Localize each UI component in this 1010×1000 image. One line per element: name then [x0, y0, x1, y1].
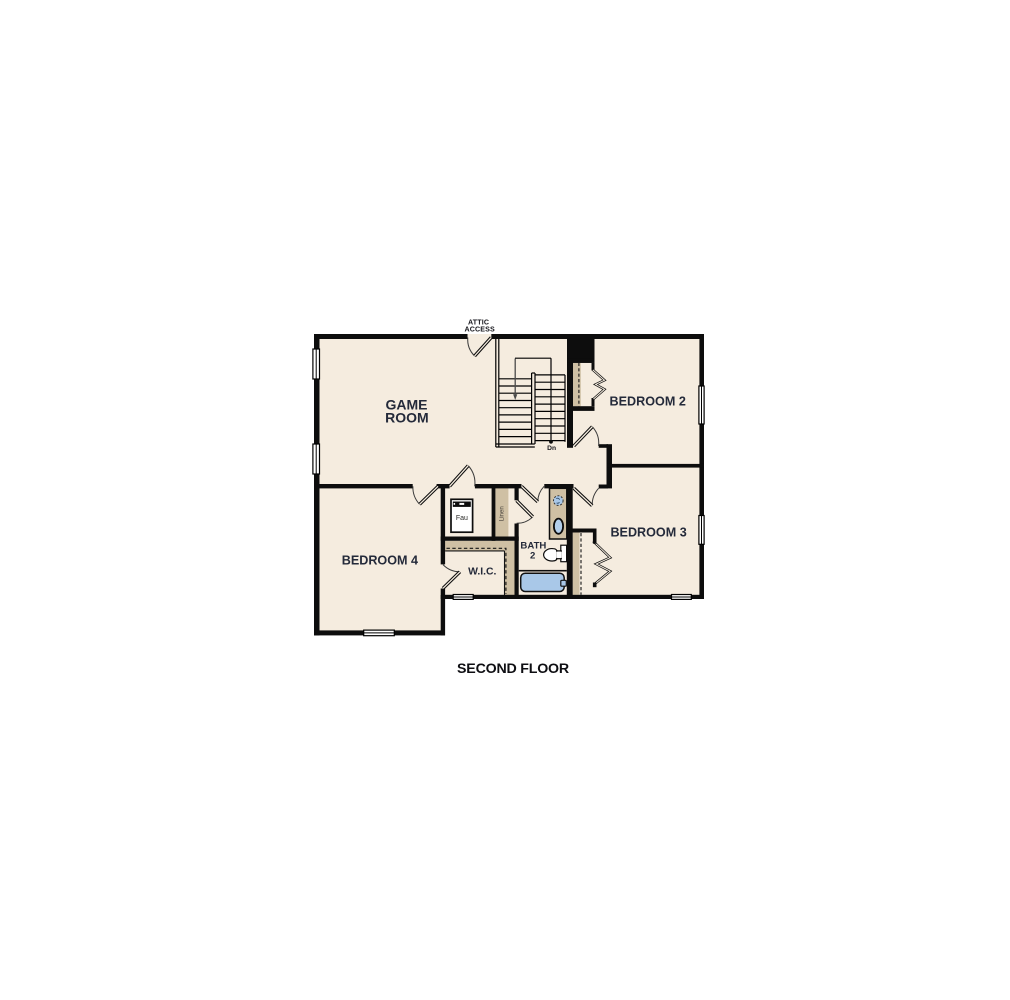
svg-text:BATH: BATH [520, 540, 546, 551]
svg-text:SECOND FLOOR: SECOND FLOOR [457, 661, 569, 677]
svg-text:ROOM: ROOM [385, 410, 429, 426]
svg-text:BEDROOM 2: BEDROOM 2 [610, 395, 686, 409]
svg-text:W.I.C.: W.I.C. [468, 567, 496, 578]
svg-text:Fau: Fau [456, 515, 468, 522]
svg-text:Linen: Linen [499, 506, 506, 522]
svg-text:2: 2 [530, 551, 535, 562]
svg-text:BEDROOM 4: BEDROOM 4 [342, 554, 418, 568]
svg-text:Dn: Dn [547, 445, 556, 452]
svg-text:ACCESS: ACCESS [464, 325, 495, 333]
svg-text:BEDROOM 3: BEDROOM 3 [610, 526, 686, 540]
